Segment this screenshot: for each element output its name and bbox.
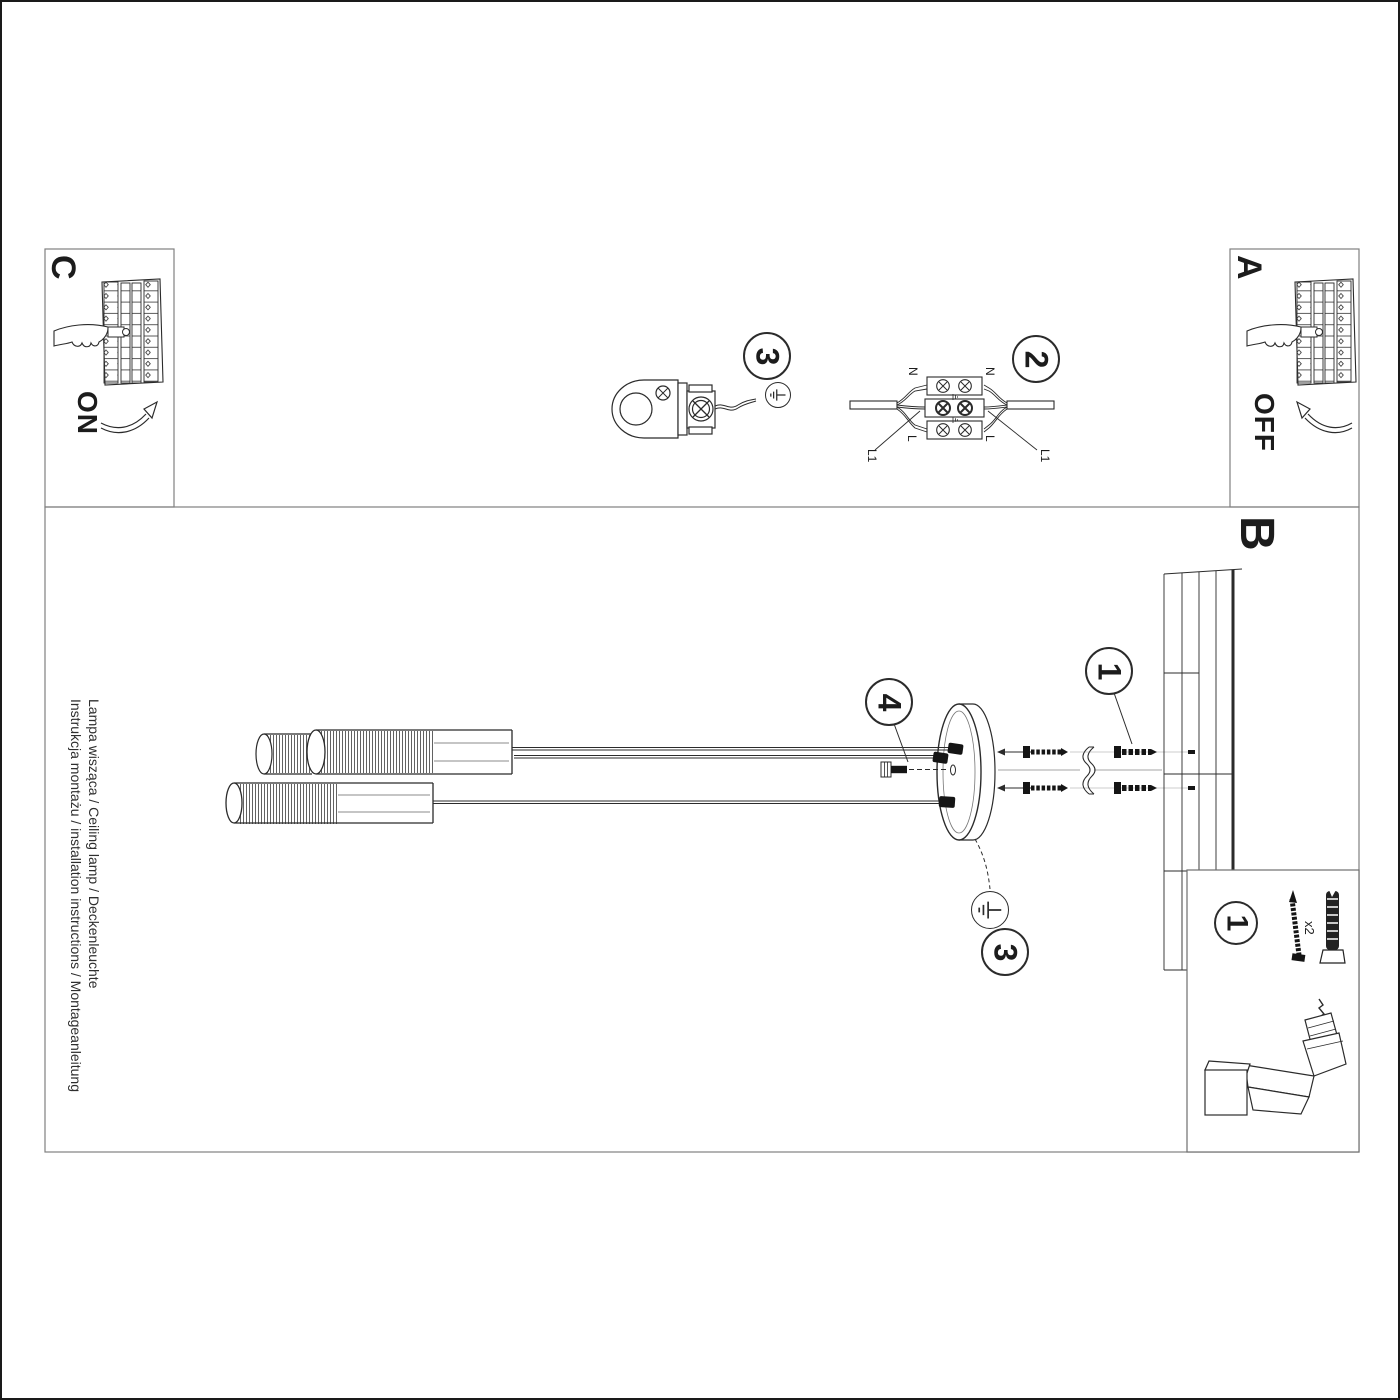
- terminal-label-l1-right: L1: [1039, 449, 1051, 462]
- section-a-label: A: [1232, 255, 1266, 280]
- wall-plug-top: [1114, 746, 1157, 758]
- hardware-quantity-label: x2: [1303, 921, 1316, 935]
- l1-leader-left: [875, 411, 920, 450]
- section-c-label: C: [46, 255, 80, 280]
- main-drawing-frame: [45, 507, 1359, 1152]
- terminal-row-earth: [925, 399, 984, 417]
- off-arrow-icon: [1297, 402, 1352, 433]
- drill-hole-bottom: [1188, 786, 1195, 790]
- earth-ground-icon-large: [971, 891, 1009, 929]
- step-2-badge: 2: [1012, 335, 1060, 383]
- terminal-label-n-right: N: [984, 367, 996, 376]
- terminal-row-neutral: [927, 377, 982, 395]
- step-3-badge-top: 3: [743, 332, 791, 380]
- instruction-sheet: C ON A OFF B Instrukcja montażu / instal…: [0, 0, 1400, 1400]
- terminal-label-l-left: L: [906, 435, 918, 442]
- switch-on-label: ON: [73, 391, 101, 435]
- earth-symbol: [768, 385, 788, 405]
- section-b-label: B: [1232, 516, 1280, 551]
- terminal-row-live: [927, 421, 982, 439]
- wall-plug-bottom: [1114, 782, 1157, 794]
- drill-hole-top: [1188, 750, 1195, 754]
- suspension-wires: [433, 748, 950, 804]
- step-4-badge: 4: [865, 678, 913, 726]
- terminal-block-wiring: [850, 377, 1054, 450]
- terminal-label-l-right: L: [984, 435, 996, 442]
- mounting-screw-bottom: [1023, 782, 1068, 794]
- breaker-panel-c-with-hand-icon: [54, 279, 163, 385]
- mounting-screw-top: [1023, 746, 1068, 758]
- switch-off-label: OFF: [1250, 393, 1278, 452]
- diagram-linework: [2, 2, 1398, 1398]
- lamp-shades: [226, 730, 512, 824]
- leader-lines: [893, 690, 1132, 889]
- supply-cable-left: [850, 401, 897, 409]
- step1-leader: [1113, 690, 1132, 744]
- mounting-hardware: [997, 746, 1195, 794]
- instruction-title-line: Instrukcja montażu / installation instru…: [69, 699, 83, 1092]
- terminal-label-l1-left: L1: [866, 449, 878, 462]
- earth-leader: [975, 839, 990, 889]
- on-arrow-icon: [101, 402, 157, 433]
- earth-symbol: [975, 895, 1005, 925]
- parts-step-1-badge: 1: [1214, 901, 1258, 945]
- terminal-label-n-left: N: [907, 367, 919, 376]
- step-1-badge: 1: [1085, 647, 1133, 695]
- step-3-badge-bottom: 3: [981, 928, 1029, 976]
- breaker-panel-a-with-hand-icon: [1247, 279, 1356, 385]
- l1-leader-right: [988, 411, 1037, 450]
- earth-ground-icon-small: [765, 382, 791, 408]
- product-title-line: Lampa wisząca / Ceiling lamp / Deckenleu…: [87, 699, 101, 988]
- mounting-bracket: [1083, 747, 1095, 794]
- included-parts-box: [1187, 870, 1359, 1152]
- supply-cable-right: [1007, 401, 1054, 409]
- ceiling-canopy: [937, 704, 995, 840]
- ceiling-hook-assembly: [612, 380, 756, 438]
